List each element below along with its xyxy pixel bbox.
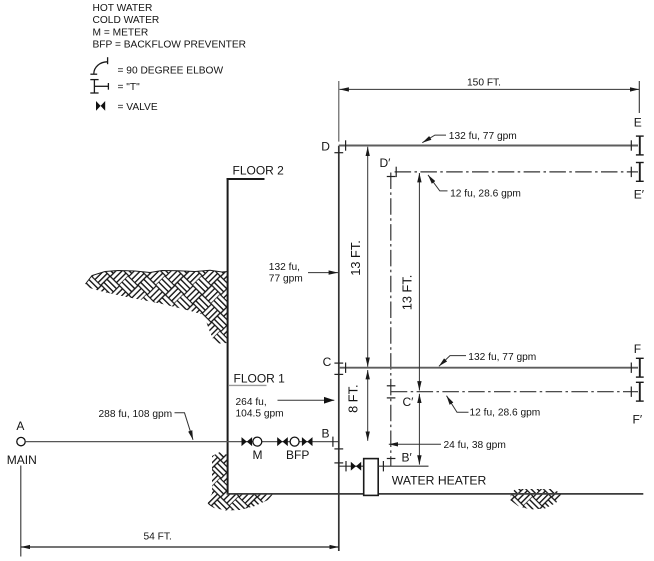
svg-text:150 FT.: 150 FT. [467,77,501,88]
svg-text:HOT WATER: HOT WATER [93,3,153,14]
svg-text:13 FT.: 13 FT. [400,275,415,311]
svg-text:WATER HEATER: WATER HEATER [392,474,487,488]
svg-text:132 fu, 77 gpm: 132 fu, 77 gpm [468,352,536,363]
svg-text:COLD WATER: COLD WATER [93,15,160,26]
svg-text:FLOOR 2: FLOOR 2 [233,163,285,177]
svg-text:= VALVE: = VALVE [118,102,158,113]
svg-text:A: A [16,419,24,433]
svg-text:12 fu, 28.6 gpm: 12 fu, 28.6 gpm [450,189,521,200]
svg-text:D′: D′ [380,156,392,170]
svg-text:24 fu, 38 gpm: 24 fu, 38 gpm [444,440,506,451]
svg-text:B: B [322,427,330,441]
svg-text:13 FT.: 13 FT. [348,240,363,276]
svg-text:77 gpm: 77 gpm [269,273,303,284]
svg-text:MAIN: MAIN [7,453,37,467]
svg-text:F: F [634,342,641,356]
svg-text:8 FT.: 8 FT. [346,384,361,412]
svg-text:= 90 DEGREE ELBOW: = 90 DEGREE ELBOW [118,66,224,77]
svg-text:288 fu, 108 gpm: 288 fu, 108 gpm [99,409,173,420]
svg-text:E′: E′ [634,187,645,201]
svg-text:C: C [323,355,332,369]
svg-text:B′: B′ [402,451,413,465]
svg-text:M: M [253,448,263,462]
svg-text:E: E [634,116,642,130]
svg-text:132 fu, 77 gpm: 132 fu, 77 gpm [449,131,517,142]
svg-text:264 fu,: 264 fu, [236,397,267,408]
svg-text:BFP: BFP [286,448,309,462]
svg-text:104.5 gpm: 104.5 gpm [236,409,284,420]
svg-text:12 fu, 28.6 gpm: 12 fu, 28.6 gpm [470,408,541,419]
svg-text:F′: F′ [633,413,643,427]
svg-text:54 FT.: 54 FT. [144,531,172,542]
svg-text:= "T": = "T" [118,82,141,93]
svg-text:M = METER: M = METER [93,27,149,38]
svg-text:BFP = BACKFLOW PREVENTER: BFP = BACKFLOW PREVENTER [93,40,247,51]
svg-text:C′: C′ [403,395,415,409]
svg-text:132 fu,: 132 fu, [269,262,300,273]
svg-text:FLOOR 1: FLOOR 1 [234,371,286,385]
svg-text:D: D [321,140,330,154]
